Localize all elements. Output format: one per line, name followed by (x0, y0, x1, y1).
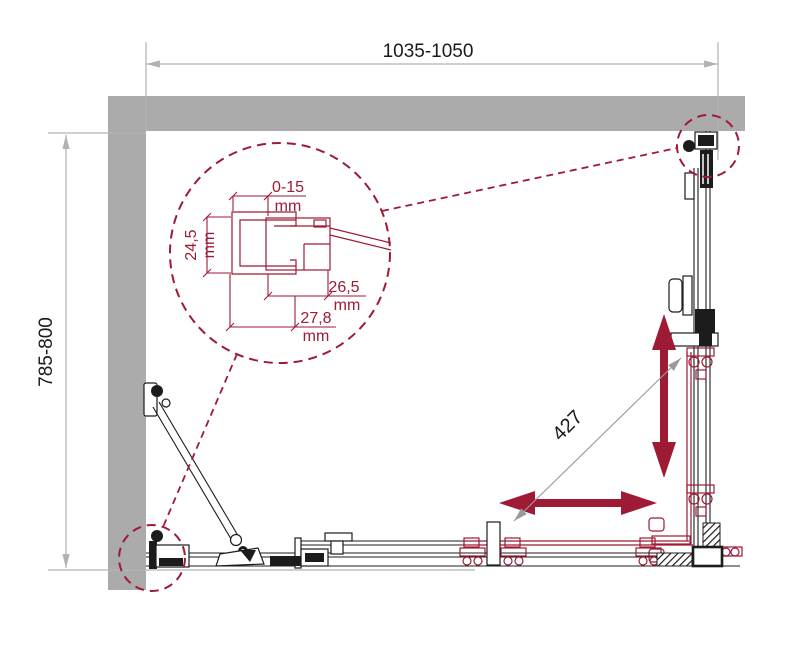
wall-profile-top (683, 132, 717, 199)
roller-set-mid (501, 538, 526, 565)
detail-dim-inner-width: 26,5 mm (264, 270, 366, 314)
width-dimension-label: 1035-1050 (383, 41, 474, 62)
top-wall (108, 96, 745, 131)
dimension-depth: 785-800 (36, 133, 475, 570)
walls (108, 96, 745, 590)
drawing-svg: 1035-1050 785-800 (0, 0, 800, 662)
detail-dim-adjustment: 0-15 mm (229, 179, 306, 216)
left-wall (108, 131, 146, 590)
outer-width-unit: mm (303, 328, 330, 345)
profile-depth-unit: mm (201, 232, 218, 259)
roller-set-left (460, 538, 485, 565)
outer-width-value: 27,8 (300, 310, 331, 327)
profile-cross-section (232, 212, 391, 274)
technical-drawing-shower-enclosure: 1035-1050 785-800 (0, 0, 800, 662)
door-guide-cluster (270, 533, 352, 566)
inner-width-unit: mm (334, 297, 361, 314)
sliding-door-front (460, 522, 661, 565)
detail-callout: 0-15 mm 24,5 mm 26,5 mm (119, 115, 739, 591)
dim-arrow-top (62, 135, 69, 149)
dim-arrow-left (146, 60, 160, 67)
glass-panel-line (330, 235, 391, 250)
leader-to-top-corner (382, 148, 677, 211)
inner-width-value: 26,5 (328, 279, 359, 296)
adjustment-unit: mm (275, 198, 302, 215)
detail-dim-outer-width: 27,8 mm (226, 274, 336, 345)
leader-to-bottom-corner (163, 354, 237, 527)
dim-arrow-bottom (62, 554, 69, 568)
dim-arrow-right (704, 60, 718, 67)
profile-depth-value: 24,5 (183, 229, 200, 260)
door-stile (487, 522, 500, 565)
door-opening-dimension: 427 (514, 358, 681, 521)
door-opening-label: 427 (548, 406, 587, 445)
glass-panel-line (330, 228, 391, 243)
detail-dim-profile-depth: 24,5 mm (183, 213, 231, 277)
adjustment-value: 0-15 (272, 179, 304, 196)
depth-dimension-label: 785-800 (36, 317, 57, 387)
